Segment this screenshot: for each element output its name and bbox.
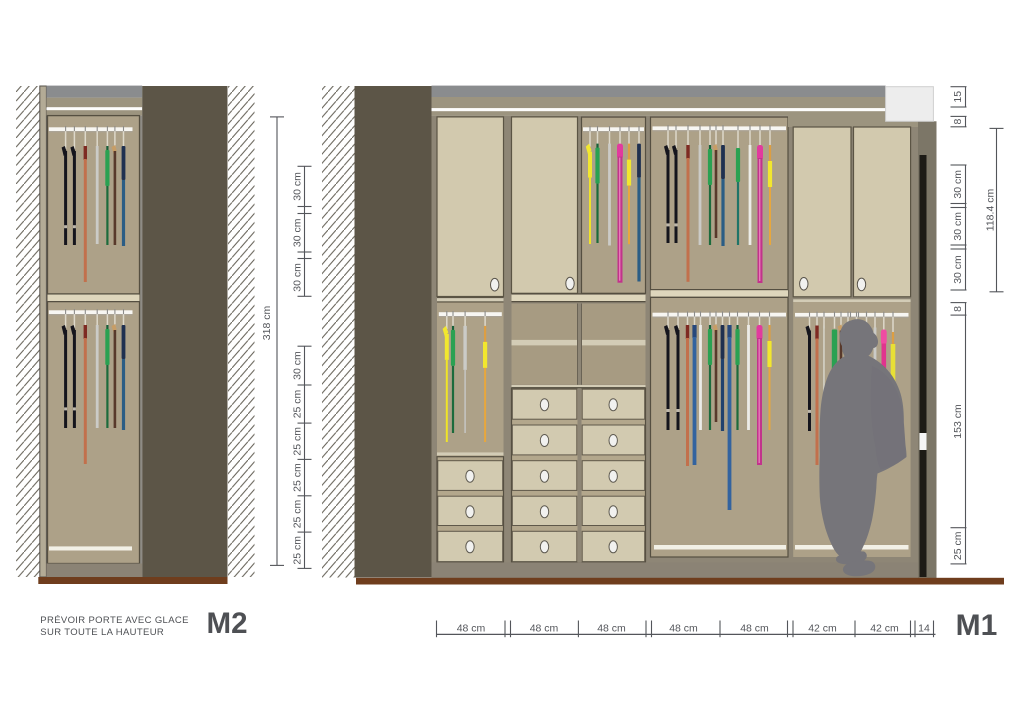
svg-text:48 cm: 48 cm bbox=[740, 623, 769, 635]
svg-text:8: 8 bbox=[952, 119, 964, 125]
svg-text:42 cm: 42 cm bbox=[808, 623, 837, 635]
svg-text:25 cm: 25 cm bbox=[291, 427, 303, 456]
svg-text:118.4 cm: 118.4 cm bbox=[985, 189, 997, 232]
svg-text:25 cm: 25 cm bbox=[291, 463, 303, 492]
svg-text:48 cm: 48 cm bbox=[597, 623, 626, 635]
svg-text:25 cm: 25 cm bbox=[291, 536, 303, 565]
svg-text:318 cm: 318 cm bbox=[261, 306, 273, 341]
svg-text:14: 14 bbox=[918, 623, 930, 635]
svg-text:8: 8 bbox=[952, 306, 964, 312]
svg-text:30 cm: 30 cm bbox=[952, 170, 964, 199]
svg-text:48 cm: 48 cm bbox=[457, 623, 486, 635]
svg-text:153 cm: 153 cm bbox=[952, 404, 964, 439]
svg-text:30 cm: 30 cm bbox=[291, 218, 303, 247]
svg-text:PRÉVOIR PORTE AVEC GLACE: PRÉVOIR PORTE AVEC GLACE bbox=[40, 615, 188, 626]
svg-text:30 cm: 30 cm bbox=[291, 263, 303, 292]
svg-text:M2: M2 bbox=[207, 607, 248, 640]
svg-text:30 cm: 30 cm bbox=[952, 212, 964, 241]
svg-text:25 cm: 25 cm bbox=[952, 531, 964, 560]
svg-text:30 cm: 30 cm bbox=[291, 351, 303, 380]
svg-text:48 cm: 48 cm bbox=[669, 623, 698, 635]
svg-text:15: 15 bbox=[952, 91, 964, 103]
svg-text:M1: M1 bbox=[956, 609, 998, 642]
svg-text:25 cm: 25 cm bbox=[291, 389, 303, 418]
svg-text:30 cm: 30 cm bbox=[952, 255, 964, 284]
svg-text:25 cm: 25 cm bbox=[291, 499, 303, 528]
svg-text:30 cm: 30 cm bbox=[291, 172, 303, 201]
svg-text:42 cm: 42 cm bbox=[870, 623, 899, 635]
svg-text:SUR TOUTE LA HAUTEUR: SUR TOUTE LA HAUTEUR bbox=[40, 627, 164, 638]
svg-text:48 cm: 48 cm bbox=[530, 623, 559, 635]
